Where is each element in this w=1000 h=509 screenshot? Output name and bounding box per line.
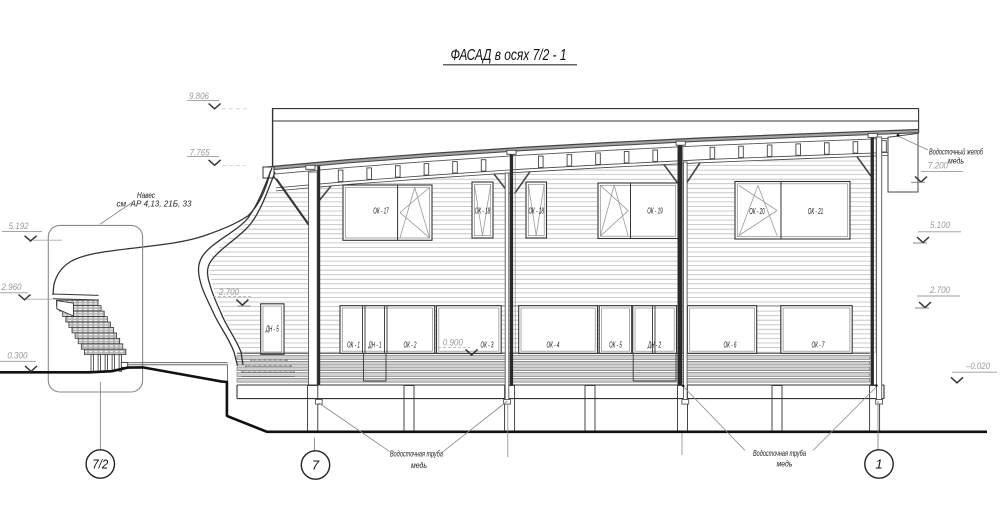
svg-text:ОК - 20: ОК - 20 [749, 207, 765, 216]
svg-text:ОК - 18: ОК - 18 [528, 206, 544, 215]
svg-text:5.100: 5.100 [930, 220, 951, 230]
svg-text:2.700: 2.700 [218, 287, 240, 297]
svg-text:ДН - 2: ДН - 2 [647, 340, 661, 349]
svg-text:5.192: 5.192 [9, 221, 29, 231]
svg-text:7.200: 7.200 [928, 161, 949, 171]
svg-text:2.960: 2.960 [1, 282, 23, 292]
svg-text:ОК - 19: ОК - 19 [647, 206, 663, 215]
svg-text:0.900: 0.900 [443, 338, 464, 348]
svg-text:ОК - 7: ОК - 7 [812, 340, 825, 349]
svg-text:медь: медь [777, 460, 793, 469]
svg-text:ДН - 1: ДН - 1 [368, 340, 382, 349]
svg-text:медь: медь [411, 461, 427, 470]
svg-text:Водосточная труба: Водосточная труба [390, 450, 443, 459]
svg-text:–0.020: –0.020 [965, 361, 991, 371]
svg-text:ОК - 6: ОК - 6 [724, 340, 737, 349]
svg-text:0.300: 0.300 [7, 350, 28, 360]
svg-text:см. АР 4,13, 21Б, 33: см. АР 4,13, 21Б, 33 [117, 200, 192, 209]
svg-text:ОК - 2: ОК - 2 [404, 340, 417, 349]
svg-text:9.806: 9.806 [189, 91, 210, 101]
svg-text:медь: медь [948, 157, 964, 166]
svg-text:Водосточный желоб: Водосточный желоб [929, 148, 983, 157]
svg-text:ФАСАД в осях 7/2 - 1: ФАСАД в осях 7/2 - 1 [451, 47, 567, 64]
svg-text:ОК - 5: ОК - 5 [609, 340, 622, 349]
svg-text:1: 1 [875, 457, 882, 472]
svg-text:7: 7 [312, 458, 320, 473]
svg-text:7/2: 7/2 [92, 457, 109, 472]
svg-text:7.765: 7.765 [190, 148, 211, 158]
svg-text:ОК - 1: ОК - 1 [347, 340, 360, 349]
svg-text:ОК - 4: ОК - 4 [547, 340, 560, 349]
svg-text:2.700: 2.700 [929, 285, 951, 295]
svg-text:ОК - 3: ОК - 3 [481, 340, 494, 349]
svg-text:Навес: Навес [137, 191, 155, 200]
svg-text:ОК - 21: ОК - 21 [808, 207, 824, 216]
svg-text:Водосточная труба: Водосточная труба [753, 449, 806, 458]
svg-text:ОК - 17: ОК - 17 [373, 206, 389, 215]
svg-text:ОК - 18: ОК - 18 [475, 206, 491, 215]
svg-text:ДН - 5: ДН - 5 [265, 325, 279, 334]
